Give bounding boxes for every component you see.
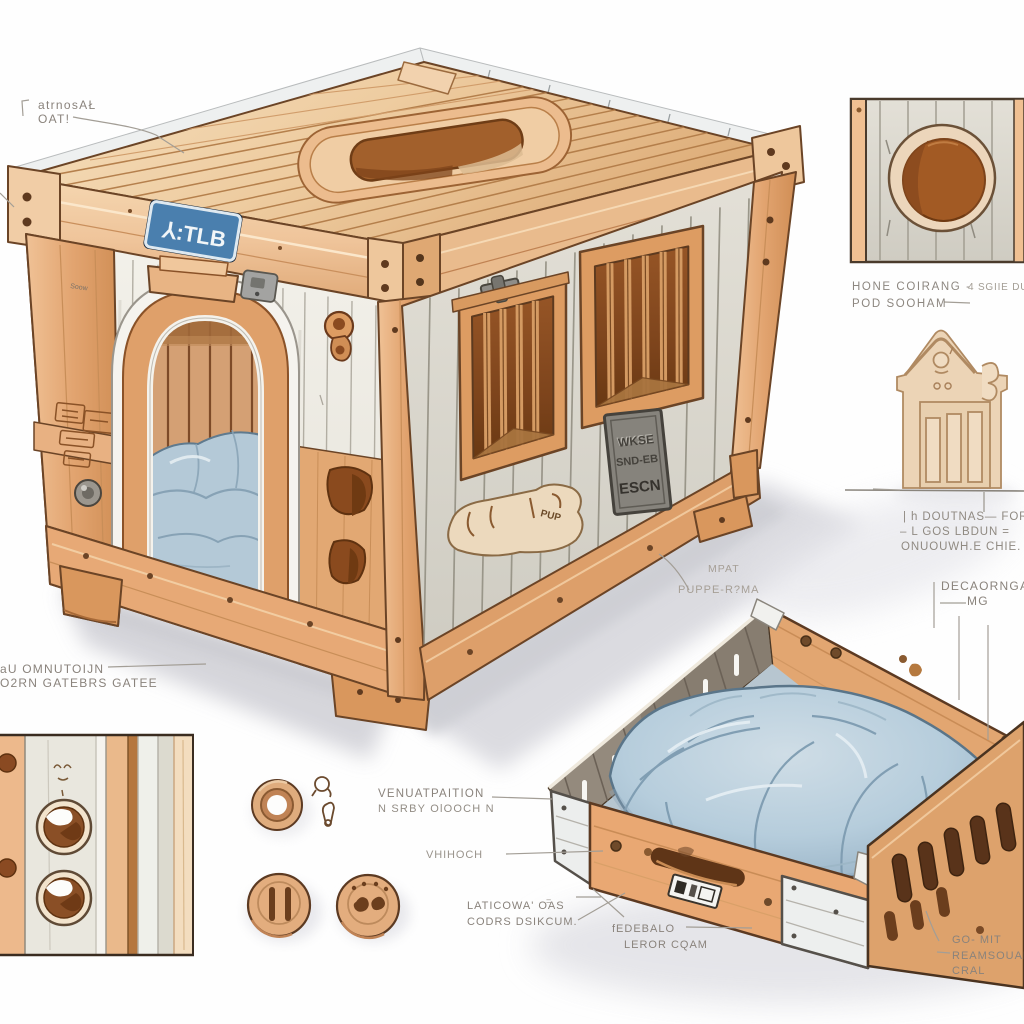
svg-text:N SRBY OlOOCH N: N SRBY OlOOCH N — [378, 803, 495, 815]
svg-text:CODRS DSIKCUM.: CODRS DSIKCUM. — [467, 916, 578, 928]
svg-text:GO- MIT: GO- MIT — [952, 934, 1002, 946]
svg-text:CRAL: CRAL — [952, 965, 985, 977]
svg-text:VHIНOCH: VHIНOCH — [426, 849, 483, 861]
svg-text:LEROR CQAM: LEROR CQAM — [624, 939, 708, 951]
svg-text:REAMSOUAM: REAMSOUAM — [952, 950, 1024, 962]
svg-text:| h DOUTNAS— FOR —: | h DOUTNAS— FOR — — [903, 511, 1024, 523]
svg-text:DECAORNGAIN: DECAORNGAIN — [941, 579, 1024, 593]
svg-text:O2RN GATEBRS GATEE: O2RN GATEBRS GATEE — [0, 676, 158, 690]
svg-text:MG: MG — [967, 594, 989, 608]
svg-text:MPAT: MPAT — [708, 563, 740, 575]
svg-text:VENUATPAITION: VENUATPAITION — [378, 788, 485, 800]
svg-text:HONE COIRANG -: HONE COIRANG - — [852, 281, 972, 293]
svg-text:– L GOS LBDUN =: – L GOS LBDUN = — [900, 526, 1010, 538]
svg-text:OAT!: OAT! — [38, 112, 70, 126]
svg-text:4 SGIIE DU4: 4 SGIIE DU4 — [968, 282, 1024, 293]
svg-text:=: = — [546, 896, 551, 906]
svg-text:POD SOOHAM: POD SOOHAM — [852, 298, 947, 310]
svg-text:aU OMNUTOIJN: aU OMNUTOIJN — [0, 662, 104, 676]
svg-text:fEDEBALO: fEDEBALO — [612, 923, 675, 935]
svg-text:PUPPE-R?MA: PUPPE-R?MA — [678, 584, 760, 596]
svg-text:atrnosAŁ: atrnosAŁ — [38, 98, 96, 112]
svg-text:ONUOUWH.E CHIE.: ONUOUWH.E CHIE. — [901, 541, 1021, 553]
